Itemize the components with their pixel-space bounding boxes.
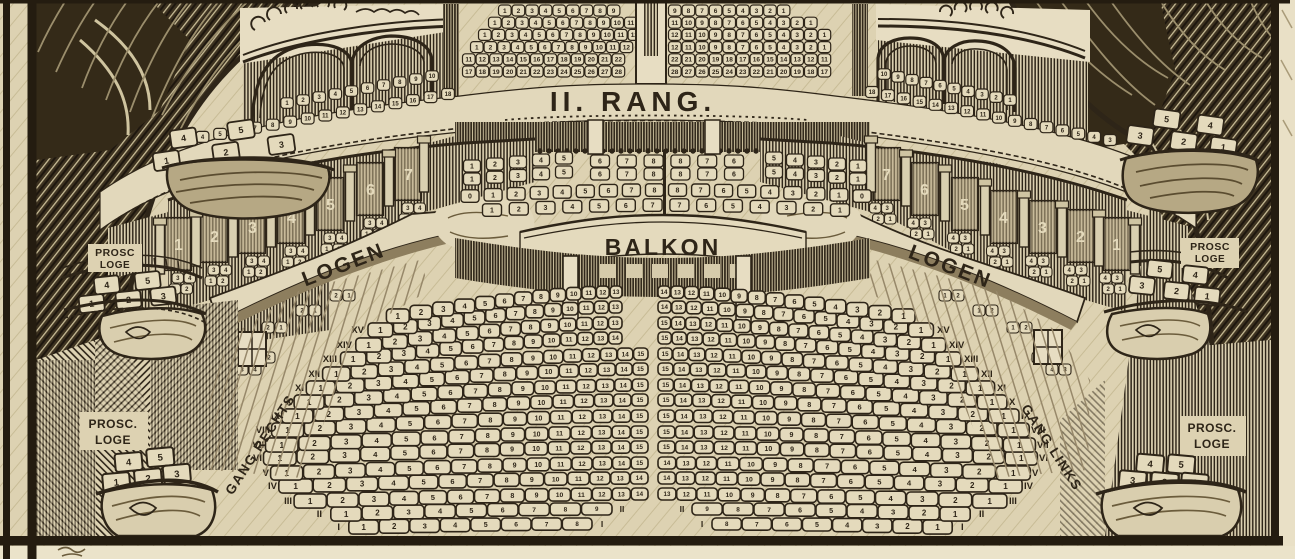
svg-text:12: 12 bbox=[596, 476, 604, 483]
svg-text:5: 5 bbox=[877, 478, 881, 487]
svg-text:13: 13 bbox=[599, 461, 607, 468]
svg-text:14: 14 bbox=[619, 397, 627, 404]
svg-text:22: 22 bbox=[753, 69, 761, 76]
svg-text:9: 9 bbox=[530, 477, 534, 484]
svg-text:11: 11 bbox=[617, 32, 624, 39]
svg-text:8: 8 bbox=[510, 355, 514, 364]
svg-text:PROSC.: PROSC. bbox=[88, 417, 137, 431]
svg-text:6: 6 bbox=[459, 493, 463, 502]
svg-text:3: 3 bbox=[402, 349, 407, 358]
svg-text:8: 8 bbox=[498, 385, 502, 394]
svg-text:4: 4 bbox=[907, 479, 912, 488]
svg-text:10: 10 bbox=[614, 20, 622, 27]
svg-text:6: 6 bbox=[755, 44, 759, 51]
svg-text:6: 6 bbox=[436, 418, 440, 427]
svg-text:7: 7 bbox=[699, 188, 703, 195]
svg-text:3: 3 bbox=[755, 8, 759, 15]
svg-text:19: 19 bbox=[492, 69, 500, 76]
svg-text:7: 7 bbox=[463, 417, 467, 426]
svg-text:6: 6 bbox=[435, 463, 439, 472]
svg-text:5: 5 bbox=[1157, 264, 1163, 274]
svg-text:7: 7 bbox=[459, 446, 463, 455]
svg-text:7: 7 bbox=[826, 387, 830, 396]
svg-text:9: 9 bbox=[769, 356, 773, 363]
svg-text:4: 4 bbox=[741, 8, 745, 15]
svg-text:12: 12 bbox=[339, 111, 346, 117]
svg-text:4: 4 bbox=[379, 421, 384, 430]
svg-text:1: 1 bbox=[838, 208, 842, 215]
svg-text:4: 4 bbox=[415, 362, 420, 371]
svg-text:4: 4 bbox=[782, 44, 786, 51]
svg-text:17: 17 bbox=[547, 57, 555, 64]
svg-text:1: 1 bbox=[856, 164, 860, 171]
svg-text:5: 5 bbox=[745, 189, 749, 196]
svg-text:11: 11 bbox=[738, 399, 745, 406]
svg-text:4: 4 bbox=[903, 392, 908, 401]
svg-text:3: 3 bbox=[795, 32, 799, 39]
svg-text:1: 1 bbox=[919, 326, 924, 335]
svg-text:2: 2 bbox=[953, 496, 958, 505]
svg-text:12: 12 bbox=[807, 57, 815, 64]
svg-text:11: 11 bbox=[565, 337, 572, 344]
svg-text:8: 8 bbox=[727, 44, 731, 51]
svg-text:4: 4 bbox=[391, 479, 396, 488]
svg-text:16: 16 bbox=[410, 98, 417, 104]
svg-text:9: 9 bbox=[584, 44, 588, 51]
svg-text:6: 6 bbox=[867, 433, 871, 442]
svg-text:1: 1 bbox=[470, 164, 474, 171]
svg-text:5: 5 bbox=[772, 170, 776, 177]
svg-text:11: 11 bbox=[569, 353, 576, 360]
svg-text:5: 5 bbox=[326, 197, 335, 214]
svg-text:8: 8 bbox=[652, 172, 656, 179]
svg-text:10: 10 bbox=[541, 385, 549, 392]
svg-text:12: 12 bbox=[705, 322, 713, 329]
svg-text:2: 2 bbox=[878, 309, 883, 318]
svg-text:4: 4 bbox=[782, 32, 786, 39]
svg-text:14: 14 bbox=[622, 351, 630, 358]
svg-text:8: 8 bbox=[564, 506, 568, 513]
svg-text:10: 10 bbox=[764, 431, 772, 438]
svg-text:21: 21 bbox=[766, 69, 774, 76]
svg-text:16: 16 bbox=[753, 57, 761, 64]
svg-text:1: 1 bbox=[809, 20, 813, 27]
svg-text:10: 10 bbox=[564, 322, 572, 329]
svg-text:7: 7 bbox=[781, 310, 785, 319]
svg-text:10: 10 bbox=[723, 307, 731, 314]
svg-text:5: 5 bbox=[557, 8, 561, 15]
svg-text:15: 15 bbox=[662, 351, 669, 358]
svg-text:10: 10 bbox=[698, 44, 706, 51]
svg-text:2: 2 bbox=[795, 20, 799, 27]
svg-text:1: 1 bbox=[174, 237, 183, 254]
svg-text:23: 23 bbox=[739, 69, 747, 76]
svg-text:21: 21 bbox=[520, 69, 528, 76]
svg-text:12: 12 bbox=[688, 290, 696, 297]
svg-text:8: 8 bbox=[505, 476, 509, 484]
svg-text:8: 8 bbox=[714, 20, 718, 27]
svg-text:6: 6 bbox=[471, 342, 475, 351]
svg-text:10: 10 bbox=[535, 416, 543, 423]
svg-text:4: 4 bbox=[104, 280, 110, 290]
svg-text:4: 4 bbox=[860, 333, 865, 342]
svg-text:10: 10 bbox=[719, 292, 727, 299]
svg-text:14: 14 bbox=[663, 475, 670, 482]
svg-text:4: 4 bbox=[395, 392, 400, 401]
svg-text:6: 6 bbox=[464, 358, 468, 367]
svg-text:PROSC.: PROSC. bbox=[1187, 421, 1236, 435]
svg-text:11: 11 bbox=[556, 431, 563, 438]
svg-text:6: 6 bbox=[494, 311, 498, 320]
svg-text:4: 4 bbox=[895, 377, 900, 386]
svg-text:XII: XII bbox=[981, 369, 993, 380]
svg-text:23: 23 bbox=[547, 69, 555, 76]
svg-text:13: 13 bbox=[357, 108, 364, 114]
svg-text:12: 12 bbox=[702, 476, 710, 483]
svg-text:5: 5 bbox=[484, 522, 488, 529]
svg-text:18: 18 bbox=[807, 69, 815, 76]
svg-text:1: 1 bbox=[366, 341, 371, 350]
svg-text:6: 6 bbox=[798, 507, 802, 514]
svg-text:9: 9 bbox=[525, 370, 529, 377]
svg-text:12: 12 bbox=[671, 32, 679, 39]
svg-text:5: 5 bbox=[537, 32, 541, 39]
svg-text:16: 16 bbox=[900, 97, 907, 103]
svg-text:2: 2 bbox=[907, 338, 912, 347]
svg-text:9: 9 bbox=[548, 323, 552, 330]
svg-text:5: 5 bbox=[529, 44, 533, 51]
svg-text:14: 14 bbox=[618, 413, 626, 420]
svg-text:14: 14 bbox=[663, 460, 670, 467]
svg-text:4: 4 bbox=[378, 465, 383, 474]
svg-text:4: 4 bbox=[544, 8, 548, 15]
svg-text:22: 22 bbox=[533, 69, 541, 76]
svg-text:2: 2 bbox=[419, 308, 424, 317]
svg-text:13: 13 bbox=[617, 475, 625, 482]
svg-text:8: 8 bbox=[762, 309, 766, 317]
svg-text:8: 8 bbox=[790, 355, 794, 364]
svg-text:1: 1 bbox=[293, 482, 298, 491]
svg-text:6: 6 bbox=[432, 433, 436, 442]
svg-text:18: 18 bbox=[479, 69, 487, 76]
svg-text:17: 17 bbox=[821, 69, 829, 76]
svg-text:12: 12 bbox=[964, 109, 971, 115]
svg-text:6: 6 bbox=[551, 32, 555, 39]
svg-text:9: 9 bbox=[517, 401, 521, 408]
svg-text:5: 5 bbox=[858, 493, 862, 502]
svg-text:7: 7 bbox=[741, 44, 745, 51]
svg-text:4: 4 bbox=[403, 377, 408, 386]
svg-text:13: 13 bbox=[695, 367, 703, 374]
svg-text:3: 3 bbox=[502, 44, 506, 51]
svg-text:XIII: XIII bbox=[964, 354, 978, 365]
svg-text:10: 10 bbox=[742, 339, 750, 346]
svg-text:5: 5 bbox=[768, 32, 772, 39]
svg-text:11: 11 bbox=[322, 114, 329, 120]
svg-text:BALKON: BALKON bbox=[605, 234, 721, 260]
svg-text:5: 5 bbox=[755, 20, 759, 27]
svg-text:3: 3 bbox=[931, 394, 936, 403]
svg-text:17: 17 bbox=[465, 69, 473, 76]
svg-text:0: 0 bbox=[468, 194, 472, 201]
svg-text:17: 17 bbox=[427, 95, 434, 101]
svg-text:14: 14 bbox=[620, 366, 628, 373]
svg-text:9: 9 bbox=[592, 32, 596, 39]
svg-text:2: 2 bbox=[922, 509, 927, 518]
svg-text:2: 2 bbox=[1174, 286, 1180, 296]
svg-text:6: 6 bbox=[858, 403, 862, 412]
svg-text:2: 2 bbox=[835, 162, 839, 169]
svg-text:22: 22 bbox=[615, 57, 623, 64]
svg-text:11: 11 bbox=[742, 431, 749, 438]
svg-text:4: 4 bbox=[386, 406, 391, 415]
svg-text:11: 11 bbox=[555, 446, 562, 453]
svg-text:4: 4 bbox=[534, 20, 538, 27]
svg-text:3: 3 bbox=[791, 190, 795, 197]
svg-text:6: 6 bbox=[501, 507, 505, 514]
svg-text:7: 7 bbox=[804, 341, 808, 350]
svg-text:3: 3 bbox=[955, 451, 960, 460]
svg-text:7: 7 bbox=[585, 8, 589, 15]
svg-text:6: 6 bbox=[722, 188, 726, 195]
svg-text:15: 15 bbox=[663, 429, 670, 436]
svg-text:11: 11 bbox=[735, 384, 742, 391]
svg-text:7: 7 bbox=[767, 507, 771, 514]
svg-text:4: 4 bbox=[516, 44, 520, 51]
svg-text:15: 15 bbox=[636, 397, 643, 404]
svg-text:4: 4 bbox=[1192, 270, 1198, 280]
svg-text:11: 11 bbox=[729, 353, 736, 360]
svg-text:7: 7 bbox=[840, 432, 844, 441]
svg-text:9: 9 bbox=[763, 340, 767, 347]
svg-text:12: 12 bbox=[683, 491, 691, 498]
svg-text:20: 20 bbox=[780, 69, 788, 76]
svg-text:10: 10 bbox=[747, 462, 755, 469]
svg-text:1: 1 bbox=[493, 20, 497, 27]
svg-text:7: 7 bbox=[755, 521, 759, 528]
svg-text:4: 4 bbox=[913, 465, 918, 474]
svg-text:1: 1 bbox=[931, 341, 936, 350]
svg-text:14: 14 bbox=[618, 460, 626, 467]
svg-text:13: 13 bbox=[603, 367, 611, 374]
svg-text:3: 3 bbox=[344, 438, 349, 447]
svg-text:4: 4 bbox=[925, 450, 930, 459]
svg-text:6: 6 bbox=[431, 447, 435, 456]
svg-text:7: 7 bbox=[820, 371, 824, 380]
svg-text:3: 3 bbox=[782, 20, 786, 27]
svg-text:5: 5 bbox=[772, 156, 776, 163]
svg-text:11: 11 bbox=[557, 461, 564, 468]
svg-text:8: 8 bbox=[485, 446, 489, 455]
svg-text:5: 5 bbox=[597, 203, 601, 210]
svg-text:5: 5 bbox=[547, 20, 551, 27]
svg-text:I: I bbox=[601, 519, 603, 529]
svg-text:6: 6 bbox=[849, 477, 853, 486]
svg-text:2: 2 bbox=[768, 8, 772, 15]
svg-text:15: 15 bbox=[663, 397, 670, 404]
svg-text:4: 4 bbox=[539, 171, 543, 178]
svg-text:6: 6 bbox=[624, 203, 628, 210]
svg-text:15: 15 bbox=[663, 413, 670, 420]
svg-text:6: 6 bbox=[853, 463, 857, 472]
svg-text:10: 10 bbox=[759, 400, 767, 407]
svg-text:15: 15 bbox=[662, 382, 669, 389]
svg-text:8: 8 bbox=[776, 493, 780, 500]
svg-text:2: 2 bbox=[210, 229, 219, 246]
svg-text:1: 1 bbox=[1019, 454, 1024, 463]
svg-text:12: 12 bbox=[623, 44, 631, 51]
svg-text:8: 8 bbox=[510, 492, 514, 500]
svg-text:9: 9 bbox=[595, 506, 599, 513]
svg-text:10: 10 bbox=[747, 354, 755, 361]
svg-text:3: 3 bbox=[814, 173, 818, 180]
svg-text:1: 1 bbox=[856, 177, 860, 184]
svg-text:4: 4 bbox=[450, 316, 455, 325]
svg-text:11: 11 bbox=[706, 306, 713, 313]
svg-text:7: 7 bbox=[841, 446, 845, 455]
svg-text:6: 6 bbox=[792, 297, 796, 306]
svg-text:9: 9 bbox=[673, 8, 677, 15]
svg-text:11: 11 bbox=[627, 20, 634, 27]
svg-text:8: 8 bbox=[529, 325, 533, 332]
svg-text:7: 7 bbox=[629, 188, 633, 195]
svg-text:6: 6 bbox=[920, 182, 929, 199]
svg-text:2: 2 bbox=[348, 381, 353, 390]
svg-text:9: 9 bbox=[714, 44, 718, 51]
svg-text:7: 7 bbox=[825, 462, 829, 471]
svg-text:9: 9 bbox=[700, 20, 704, 27]
svg-text:1: 1 bbox=[1112, 237, 1121, 254]
svg-text:12: 12 bbox=[578, 461, 586, 468]
svg-text:2: 2 bbox=[493, 162, 497, 169]
svg-text:13: 13 bbox=[682, 475, 690, 482]
svg-text:11: 11 bbox=[732, 368, 739, 375]
svg-text:1: 1 bbox=[483, 32, 487, 39]
svg-text:LOGE: LOGE bbox=[1194, 437, 1230, 451]
svg-text:10: 10 bbox=[545, 369, 553, 376]
svg-text:12: 12 bbox=[599, 290, 607, 297]
svg-text:6: 6 bbox=[732, 159, 736, 166]
svg-text:4: 4 bbox=[560, 190, 564, 197]
svg-text:13: 13 bbox=[597, 335, 605, 342]
svg-text:11: 11 bbox=[980, 113, 987, 119]
svg-text:6: 6 bbox=[514, 522, 518, 529]
svg-text:4: 4 bbox=[871, 347, 876, 356]
svg-text:13: 13 bbox=[599, 414, 607, 421]
svg-text:1: 1 bbox=[351, 355, 356, 364]
svg-text:7: 7 bbox=[625, 159, 629, 166]
svg-text:24: 24 bbox=[726, 69, 734, 76]
svg-text:18: 18 bbox=[726, 57, 734, 64]
svg-text:10: 10 bbox=[570, 291, 578, 298]
svg-text:3: 3 bbox=[376, 379, 381, 388]
svg-text:8: 8 bbox=[736, 506, 740, 513]
svg-text:2: 2 bbox=[811, 206, 815, 213]
svg-text:13: 13 bbox=[602, 383, 610, 390]
svg-text:1: 1 bbox=[503, 8, 507, 15]
svg-text:9: 9 bbox=[513, 463, 517, 470]
svg-text:3: 3 bbox=[537, 190, 541, 197]
svg-text:5: 5 bbox=[812, 300, 816, 309]
svg-text:4: 4 bbox=[883, 362, 888, 371]
svg-text:10: 10 bbox=[745, 476, 753, 483]
svg-text:4: 4 bbox=[919, 421, 924, 430]
svg-text:6: 6 bbox=[598, 172, 602, 179]
svg-text:7: 7 bbox=[796, 326, 800, 335]
svg-text:3: 3 bbox=[360, 480, 365, 489]
svg-text:9: 9 bbox=[743, 308, 747, 315]
svg-text:10: 10 bbox=[725, 492, 733, 499]
svg-text:13: 13 bbox=[598, 445, 606, 452]
svg-text:8: 8 bbox=[727, 32, 731, 39]
svg-text:7: 7 bbox=[485, 492, 489, 501]
svg-text:10: 10 bbox=[698, 32, 706, 39]
svg-text:5: 5 bbox=[727, 8, 731, 15]
svg-text:10: 10 bbox=[534, 462, 542, 469]
svg-text:3: 3 bbox=[366, 394, 371, 403]
svg-text:2: 2 bbox=[493, 175, 497, 182]
svg-text:I: I bbox=[961, 522, 964, 533]
svg-text:3: 3 bbox=[1139, 280, 1145, 290]
svg-text:4: 4 bbox=[999, 210, 1008, 227]
svg-text:II. RANG.: II. RANG. bbox=[550, 86, 716, 117]
svg-text:8: 8 bbox=[802, 385, 806, 394]
svg-text:7: 7 bbox=[727, 20, 731, 27]
svg-text:4: 4 bbox=[846, 317, 851, 326]
svg-text:11: 11 bbox=[704, 492, 711, 499]
svg-text:1: 1 bbox=[470, 177, 474, 184]
svg-text:3: 3 bbox=[1038, 220, 1047, 237]
svg-text:11: 11 bbox=[581, 321, 588, 328]
svg-text:11: 11 bbox=[560, 399, 567, 406]
svg-text:2: 2 bbox=[311, 453, 316, 462]
svg-text:12: 12 bbox=[587, 353, 595, 360]
svg-text:4: 4 bbox=[442, 332, 447, 341]
svg-text:10: 10 bbox=[549, 354, 557, 361]
svg-text:8: 8 bbox=[797, 370, 801, 379]
svg-text:19: 19 bbox=[712, 57, 720, 64]
svg-text:9: 9 bbox=[551, 307, 555, 314]
svg-text:8: 8 bbox=[807, 400, 811, 409]
svg-text:1: 1 bbox=[1011, 469, 1016, 478]
svg-text:3: 3 bbox=[909, 365, 914, 374]
svg-text:20: 20 bbox=[698, 57, 706, 64]
svg-text:13: 13 bbox=[674, 290, 682, 297]
svg-text:10: 10 bbox=[765, 446, 773, 453]
svg-text:8: 8 bbox=[687, 8, 691, 15]
svg-text:27: 27 bbox=[601, 69, 609, 76]
svg-text:10: 10 bbox=[538, 400, 546, 407]
svg-text:14: 14 bbox=[681, 444, 689, 451]
svg-text:8: 8 bbox=[488, 461, 492, 470]
svg-text:4: 4 bbox=[426, 347, 431, 356]
svg-text:11: 11 bbox=[557, 415, 564, 422]
svg-text:5: 5 bbox=[815, 522, 819, 529]
svg-text:7: 7 bbox=[478, 476, 482, 485]
svg-text:12: 12 bbox=[582, 383, 590, 390]
svg-text:6: 6 bbox=[851, 388, 855, 397]
svg-text:11: 11 bbox=[742, 446, 749, 453]
svg-text:2: 2 bbox=[392, 522, 397, 531]
svg-text:27: 27 bbox=[685, 69, 693, 76]
svg-text:12: 12 bbox=[720, 430, 728, 437]
svg-text:8: 8 bbox=[783, 339, 787, 348]
svg-text:25: 25 bbox=[574, 69, 582, 76]
svg-text:9: 9 bbox=[705, 506, 709, 513]
svg-text:7: 7 bbox=[575, 20, 579, 27]
svg-text:2: 2 bbox=[317, 468, 322, 477]
svg-text:7: 7 bbox=[832, 401, 836, 410]
